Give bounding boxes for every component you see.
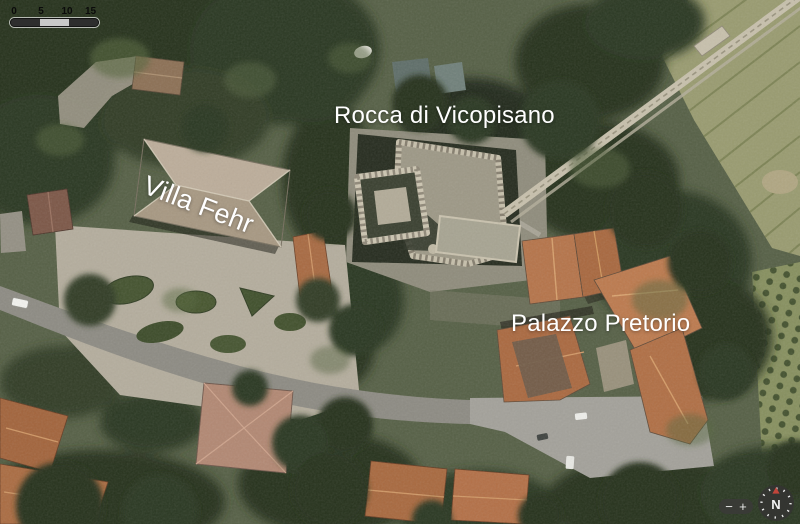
scale-tick-5: 5 <box>38 6 44 17</box>
scale-bar: 0 5 10 15 m <box>8 6 118 30</box>
scale-segment <box>40 19 69 26</box>
compass-button[interactable]: N <box>757 484 795 522</box>
scale-segment <box>11 19 40 26</box>
compass-rose-icon <box>757 484 795 522</box>
aerial-imagery <box>0 0 800 524</box>
zoom-controls: − + <box>719 499 753 514</box>
scale-segment <box>69 19 98 26</box>
photo-grain <box>0 0 800 524</box>
zoom-out-button[interactable]: − <box>725 499 733 514</box>
zoom-in-button[interactable]: + <box>739 499 747 514</box>
scale-bar-rule <box>10 18 99 27</box>
scale-tick-0: 0 <box>11 6 17 17</box>
map-viewport: Rocca di Vicopisano Villa Fehr Palazzo P… <box>0 0 800 524</box>
scale-tick-10: 10 <box>61 6 72 17</box>
